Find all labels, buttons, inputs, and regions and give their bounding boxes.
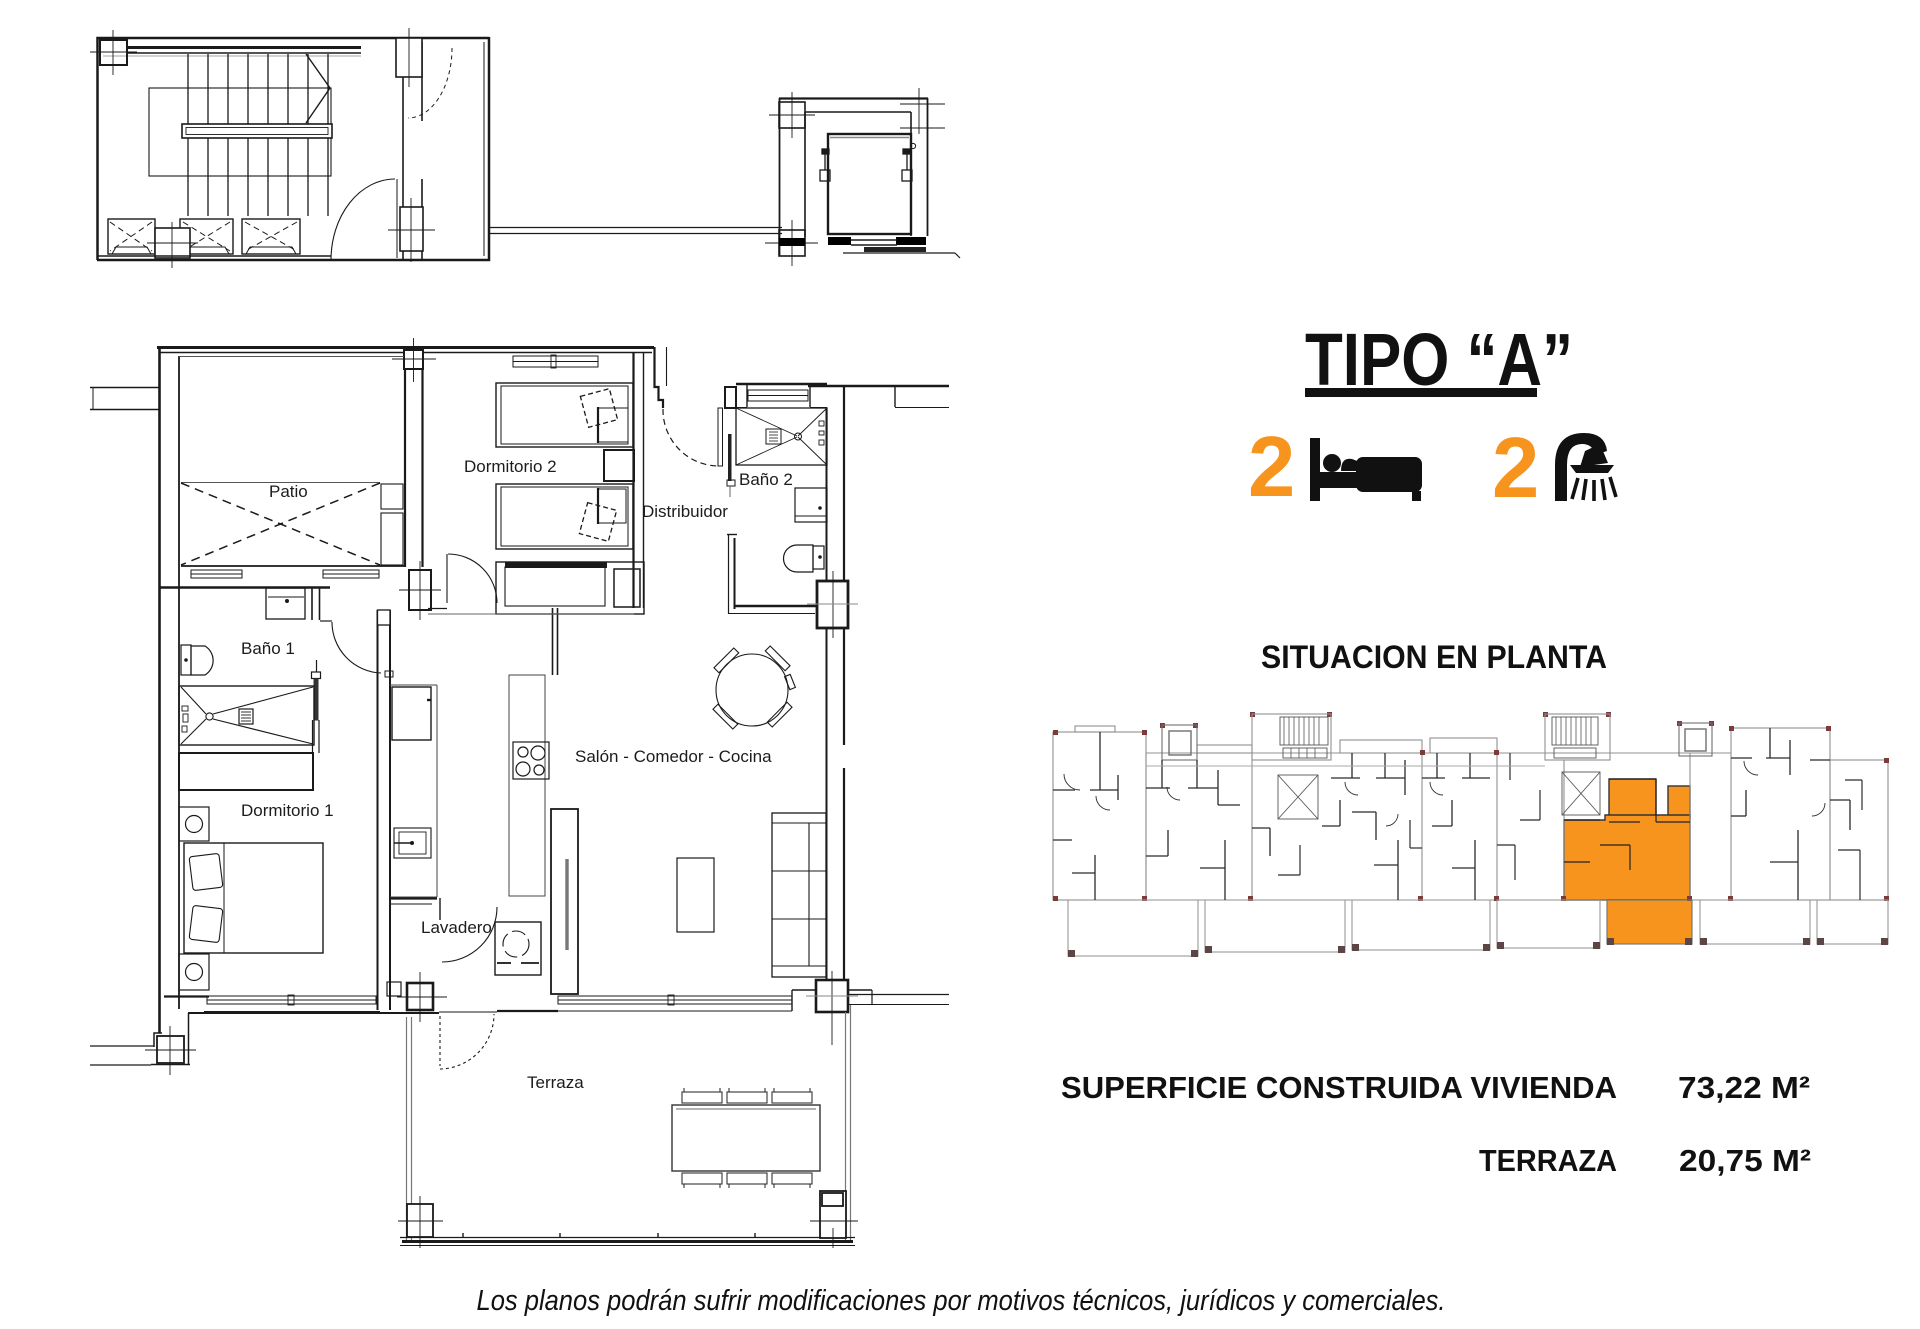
svg-text:SITUACION EN PLANTA: SITUACION EN PLANTA (1261, 639, 1607, 675)
svg-text:Baño 1: Baño 1 (241, 639, 295, 658)
svg-text:Dormitorio 2: Dormitorio 2 (464, 457, 557, 476)
svg-text:Terraza: Terraza (527, 1073, 584, 1092)
svg-text:TERRAZA: TERRAZA (1479, 1143, 1617, 1178)
svg-text:Patio: Patio (269, 482, 308, 501)
svg-text:Salón - Comedor - Cocina: Salón - Comedor - Cocina (575, 747, 772, 766)
svg-text:Los planos podrán sufrir modif: Los planos podrán sufrir modificaciones … (477, 1285, 1446, 1317)
svg-text:SUPERFICIE CONSTRUIDA VIVIENDA: SUPERFICIE CONSTRUIDA VIVIENDA (1061, 1070, 1617, 1105)
svg-text:73,22 M²: 73,22 M² (1678, 1070, 1810, 1105)
svg-text:Distribuidor: Distribuidor (642, 502, 728, 521)
svg-text:20,75 M²: 20,75 M² (1679, 1143, 1811, 1178)
svg-text:Baño 2: Baño 2 (739, 470, 793, 489)
svg-text:Dormitorio 1: Dormitorio 1 (241, 801, 334, 820)
svg-text:2: 2 (1248, 420, 1295, 515)
svg-text:Lavadero: Lavadero (421, 918, 492, 937)
svg-text:2: 2 (1492, 421, 1539, 516)
